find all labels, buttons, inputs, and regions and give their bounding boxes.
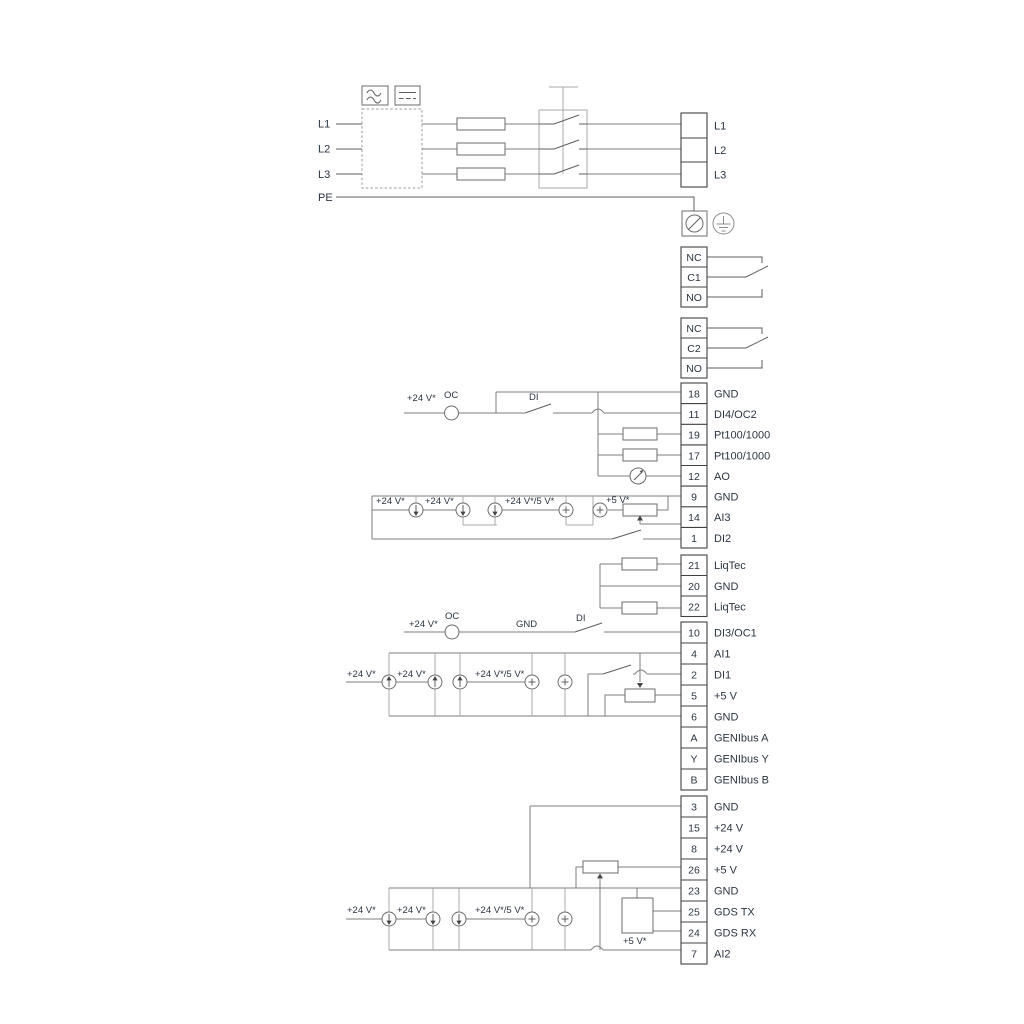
- svg-text:GENIbus B: GENIbus B: [714, 775, 769, 787]
- relay1-c1: C1: [687, 272, 701, 284]
- sensor-wiring-ai2: +5 V* +24 V* +24 V* +24 V*/5 V*: [346, 806, 681, 950]
- svg-text:6: 6: [691, 712, 697, 724]
- svg-text:DI2: DI2: [714, 533, 731, 545]
- dc-symbol-icon: [395, 86, 420, 105]
- analog-meter-icon: [630, 468, 646, 484]
- svg-text:20: 20: [688, 581, 700, 593]
- supply-label: +24 V*: [409, 619, 438, 630]
- svg-text:LiqTec: LiqTec: [714, 560, 746, 572]
- svg-text:7: 7: [691, 949, 697, 961]
- fuse-l2: [457, 143, 505, 155]
- wiring-diagram: L1 L2 L3 PE: [0, 0, 1024, 1024]
- potentiometer: [623, 496, 681, 524]
- oc-label: OC: [444, 390, 458, 401]
- sensor-wiring-ai1: +24 V* +24 V* +24 V*/5 V*: [346, 653, 681, 716]
- terminal-strip-3: 10DI3/OC1 4AI1 2DI1 5+5 V 6GND AGENIbus …: [681, 622, 769, 790]
- terminal-strip-2: 21LiqTec 20GND 22LiqTec: [681, 555, 746, 617]
- supply-label: +24 V*: [407, 393, 436, 404]
- supply-label: +24 V*/5 V*: [475, 669, 525, 680]
- relay-terminal-block-1: NC C1 NO: [681, 247, 768, 307]
- svg-text:+24 V: +24 V: [714, 844, 744, 856]
- pe-label: PE: [318, 192, 333, 204]
- supply-label: +24 V*: [397, 905, 426, 916]
- switch-contact: [525, 404, 551, 413]
- svg-text:DI4/OC2: DI4/OC2: [714, 409, 757, 421]
- svg-text:22: 22: [688, 601, 700, 613]
- gnd3-lead: [530, 806, 681, 888]
- svg-text:18: 18: [688, 388, 700, 400]
- changeover-contact-2: [707, 328, 768, 368]
- svg-text:21: 21: [688, 560, 700, 572]
- svg-text:DI1: DI1: [714, 670, 731, 682]
- switch-contact: [575, 623, 602, 632]
- fuse-l1: [457, 118, 505, 130]
- mains-filter-box: [362, 109, 422, 188]
- svg-text:GND: GND: [714, 388, 739, 400]
- current-source-icon: [382, 675, 396, 689]
- earth-ground-icon: [713, 213, 734, 234]
- svg-text:DI3/OC1: DI3/OC1: [714, 628, 757, 640]
- svg-text:Pt100/1000: Pt100/1000: [714, 430, 770, 442]
- oc-label: OC: [445, 611, 459, 622]
- mains-out-label-l1: L1: [714, 121, 726, 133]
- voltage-source-icon: [525, 675, 539, 689]
- current-source-icon: [426, 912, 440, 926]
- svg-text:17: 17: [688, 450, 700, 462]
- svg-text:12: 12: [688, 471, 700, 483]
- svg-text:Y: Y: [690, 754, 697, 766]
- svg-text:GDS TX: GDS TX: [714, 907, 755, 919]
- supply-label: +24 V*/5 V*: [475, 905, 525, 916]
- svg-text:15: 15: [688, 823, 700, 835]
- svg-text:+5 V: +5 V: [714, 691, 738, 703]
- svg-text:9: 9: [691, 492, 697, 504]
- relay1-nc: NC: [686, 252, 702, 264]
- fuse-l3: [457, 168, 505, 180]
- resistor: [623, 428, 657, 440]
- supply-label: +24 V*: [347, 905, 376, 916]
- svg-text:+5 V: +5 V: [714, 865, 738, 877]
- voltage-source-icon: [559, 503, 573, 517]
- mains-terminal-block: [681, 113, 707, 187]
- wire-hop: [591, 946, 603, 950]
- svg-text:+24 V: +24 V: [714, 823, 744, 835]
- relay2-c2: C2: [687, 343, 701, 355]
- supply-label: +24 V*: [347, 669, 376, 680]
- current-source-icon: [456, 503, 470, 517]
- pe-terminal-icon: [682, 211, 707, 236]
- gnd-label: GND: [516, 619, 537, 630]
- mains-out-label-l3: L3: [714, 170, 726, 182]
- svg-text:GENIbus A: GENIbus A: [714, 733, 769, 745]
- svg-text:GND: GND: [714, 492, 739, 504]
- svg-text:B: B: [690, 775, 697, 787]
- pe-lead: [336, 197, 694, 211]
- svg-text:2: 2: [691, 670, 697, 682]
- svg-text:11: 11: [689, 409, 700, 421]
- supply-label: +24 V*: [425, 496, 454, 507]
- svg-text:GDS RX: GDS RX: [714, 928, 757, 940]
- supply-label: +5 V*: [623, 936, 647, 947]
- mains-out-label-l2: L2: [714, 145, 726, 157]
- svg-text:25: 25: [688, 907, 700, 919]
- resistor: [622, 558, 657, 570]
- svg-text:GND: GND: [714, 581, 739, 593]
- supply-label: +24 V*: [397, 669, 426, 680]
- wire-hop: [635, 670, 647, 674]
- di-label: DI: [576, 613, 586, 624]
- svg-text:AO: AO: [714, 471, 730, 483]
- svg-text:A: A: [690, 733, 697, 745]
- terminal-strip-4: 3GND 15+24 V 8+24 V 26+5 V 23GND 25GDS T…: [681, 796, 757, 964]
- svg-text:AI3: AI3: [714, 512, 731, 524]
- svg-text:LiqTec: LiqTec: [714, 601, 746, 613]
- gds-sensor-box: +5 V*: [622, 888, 681, 947]
- current-source-icon: [428, 675, 442, 689]
- changeover-contact-1: [707, 257, 768, 297]
- svg-text:GENIbus Y: GENIbus Y: [714, 754, 769, 766]
- voltage-source-icon: [558, 675, 572, 689]
- relay-terminal-block-2: NC C2 NO: [681, 318, 768, 378]
- open-collector-icon: [445, 625, 459, 639]
- open-collector-icon: [445, 406, 459, 420]
- relay1-no: NO: [686, 292, 702, 304]
- voltage-source-icon: [593, 503, 607, 517]
- ac-symbol-icon: [362, 86, 388, 105]
- svg-text:3: 3: [691, 802, 697, 814]
- input-leads: [336, 124, 362, 174]
- voltage-source-icon: [525, 912, 539, 926]
- di-label: DI: [529, 392, 539, 403]
- switch-output-leads: [587, 124, 681, 174]
- supply-label: +24 V*: [376, 496, 405, 507]
- fuse-output-leads: [505, 124, 539, 174]
- svg-text:8: 8: [691, 844, 697, 856]
- supply-label: +5 V*: [606, 495, 630, 506]
- power-input-section: L1 L2 L3 PE: [318, 86, 734, 236]
- supply-label: +24 V*/5 V*: [505, 496, 555, 507]
- svg-text:4: 4: [691, 649, 697, 661]
- svg-text:26: 26: [688, 865, 700, 877]
- svg-text:GND: GND: [714, 886, 739, 898]
- svg-text:GND: GND: [714, 802, 739, 814]
- filter-output-leads: [422, 124, 457, 174]
- svg-text:AI1: AI1: [714, 649, 731, 661]
- svg-text:5: 5: [691, 691, 697, 703]
- svg-text:GND: GND: [714, 712, 739, 724]
- resistor: [623, 449, 657, 461]
- current-source-icon: [452, 912, 466, 926]
- svg-text:Pt100/1000: Pt100/1000: [714, 450, 770, 462]
- relay2-no: NO: [686, 363, 702, 375]
- current-source-icon: [382, 912, 396, 926]
- svg-text:10: 10: [688, 628, 700, 640]
- svg-text:24: 24: [688, 928, 700, 940]
- voltage-source-icon: [558, 912, 572, 926]
- terminal-strip-1: 18GND 11DI4/OC2 19Pt100/1000 17Pt100/100…: [681, 383, 770, 548]
- svg-text:1: 1: [691, 533, 697, 545]
- phase-label-l3: L3: [318, 169, 330, 181]
- current-source-icon: [409, 503, 423, 517]
- pt100-ao-wiring: [598, 392, 681, 484]
- resistor: [622, 602, 657, 614]
- phase-label-l2: L2: [318, 144, 330, 156]
- phase-label-l1: L1: [318, 119, 330, 131]
- digital-input-wiring-di3: +24 V* OC GND DI: [404, 611, 681, 639]
- svg-text:14: 14: [688, 512, 700, 524]
- switch-contact: [603, 665, 631, 674]
- digital-input-wiring-di4: +24 V* OC DI: [404, 390, 681, 420]
- current-source-icon: [488, 503, 502, 517]
- main-switch: [539, 87, 587, 188]
- relay2-nc: NC: [686, 323, 702, 335]
- svg-text:AI2: AI2: [714, 949, 731, 961]
- switch-contact: [612, 530, 641, 539]
- potentiometer: [605, 653, 681, 716]
- svg-text:19: 19: [688, 430, 700, 442]
- svg-text:23: 23: [688, 886, 700, 898]
- di4-bracket: [496, 392, 681, 413]
- current-source-icon: [453, 675, 467, 689]
- liqtec-wiring: [600, 558, 681, 614]
- terminal-row: 21LiqTec 20GND 22LiqTec: [688, 560, 746, 613]
- digital-input-wiring-di2: [372, 530, 681, 539]
